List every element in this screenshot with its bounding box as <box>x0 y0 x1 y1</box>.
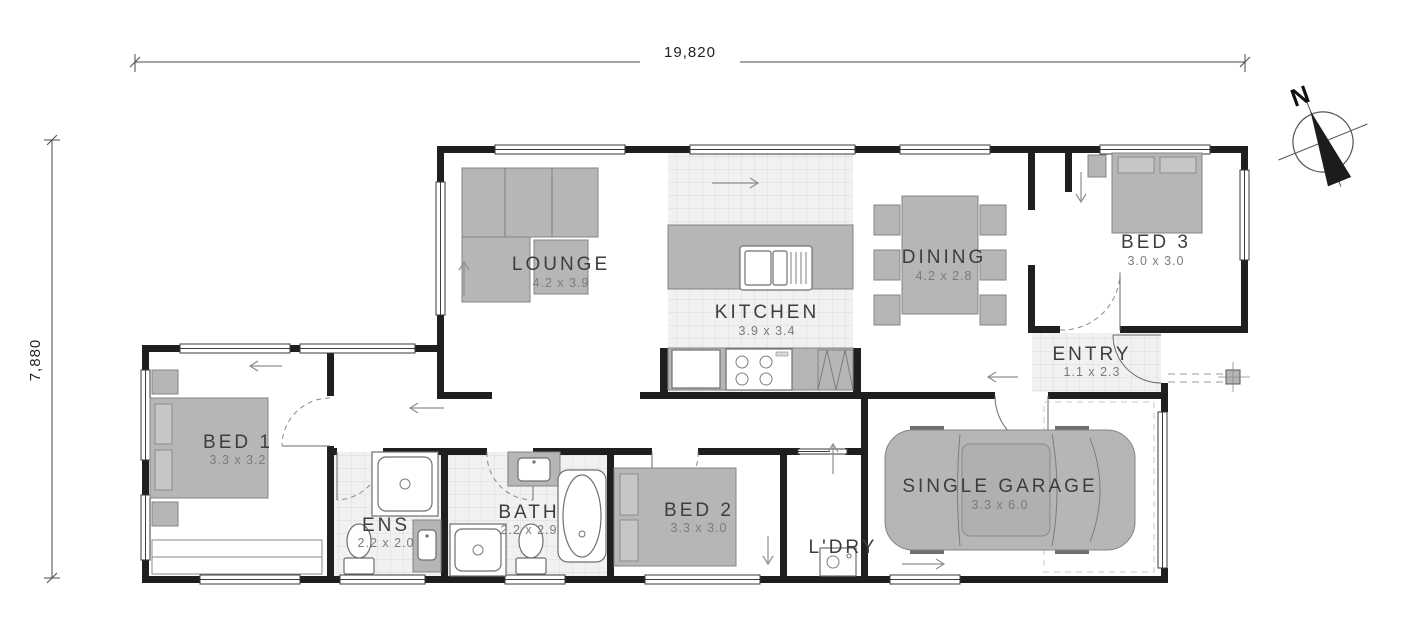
room-bed2: BED 2 3.3 x 3.0 <box>614 468 736 566</box>
lounge-size: 4.2 x 3.9 <box>533 276 590 290</box>
room-bed3: BED 3 3.0 x 3.0 <box>1088 153 1202 268</box>
entry-label: ENTRY <box>1052 344 1131 365</box>
window <box>890 575 960 584</box>
vanity <box>508 452 560 486</box>
bath-size: 2.2 x 2.9 <box>501 523 558 537</box>
shower <box>372 452 438 516</box>
room-entry: ENTRY 1.1 x 2.3 <box>1052 344 1131 379</box>
laundry-label: L'DRY <box>809 537 878 558</box>
kitchen-size: 3.9 x 3.4 <box>739 324 796 338</box>
garage-size: 3.3 x 6.0 <box>972 498 1029 512</box>
floor-plan-page: 19,820 7,880 N <box>0 0 1410 644</box>
dimension-top-label: 19,820 <box>664 44 716 61</box>
dining-label: DINING <box>902 247 987 268</box>
bed3-door <box>1060 272 1120 330</box>
bed1-size: 3.3 x 3.2 <box>210 453 267 467</box>
pantry <box>818 350 853 390</box>
bathtub <box>558 470 606 562</box>
window <box>900 145 990 154</box>
garage-label: SINGLE GARAGE <box>902 476 1097 497</box>
kitchen-cabinet <box>672 350 720 388</box>
floor-plan: 19,820 7,880 N <box>0 0 1410 644</box>
bed2-size: 3.3 x 3.0 <box>671 521 728 535</box>
bed3-label: BED 3 <box>1121 232 1191 253</box>
garage-door <box>1158 412 1167 568</box>
window <box>180 344 290 353</box>
kitchen-sink <box>740 246 812 290</box>
entry-size: 1.1 x 2.3 <box>1064 365 1121 379</box>
bed <box>1112 153 1202 233</box>
bed2-label: BED 2 <box>664 500 734 521</box>
bed3-size: 3.0 x 3.0 <box>1128 254 1185 268</box>
bedside-table <box>1088 155 1106 177</box>
laundry-slider-door <box>798 449 847 454</box>
dimension-left: 7,880 <box>27 135 60 583</box>
porch-marker <box>1168 362 1250 392</box>
window <box>645 575 760 584</box>
window <box>300 344 415 353</box>
bedside-table <box>152 370 178 394</box>
cooktop <box>726 349 792 390</box>
lounge-label: LOUNGE <box>512 254 610 275</box>
window <box>141 495 150 560</box>
window <box>495 145 625 154</box>
room-bed1: BED 1 3.3 x 3.2 <box>150 370 322 574</box>
ens-label: ENS <box>362 515 410 536</box>
direction-arrow <box>1076 172 1086 202</box>
room-garage: SINGLE GARAGE 3.3 x 6.0 <box>885 402 1154 572</box>
shower <box>450 524 506 576</box>
window <box>1240 170 1249 260</box>
direction-arrow <box>988 372 1018 382</box>
window <box>690 145 855 154</box>
dining-size: 4.2 x 2.8 <box>916 269 973 283</box>
vanity <box>413 520 441 572</box>
direction-arrow <box>250 361 282 371</box>
window <box>141 370 150 460</box>
direction-arrow <box>828 444 838 474</box>
window <box>340 575 425 584</box>
north-arrow-icon: N <box>1261 80 1386 205</box>
ens-size: 2.2 x 2.0 <box>358 536 415 550</box>
direction-arrow <box>763 536 773 564</box>
bedside-table <box>152 502 178 526</box>
direction-arrow <box>410 403 444 413</box>
wardrobe <box>152 540 322 574</box>
bed1-label: BED 1 <box>203 432 273 453</box>
dimension-left-label: 7,880 <box>27 339 44 382</box>
north-label: N <box>1287 80 1314 112</box>
window <box>505 575 565 584</box>
direction-arrow <box>902 559 944 569</box>
dimension-top: 19,820 <box>130 42 1250 72</box>
bed1-door <box>282 398 330 446</box>
room-dining: DINING 4.2 x 2.8 <box>874 196 1006 325</box>
room-lounge: LOUNGE 4.2 x 3.9 <box>462 168 610 302</box>
window <box>200 575 300 584</box>
window <box>436 182 445 315</box>
bath-label: BATH <box>498 502 559 523</box>
kitchen-label: KITCHEN <box>715 302 819 323</box>
